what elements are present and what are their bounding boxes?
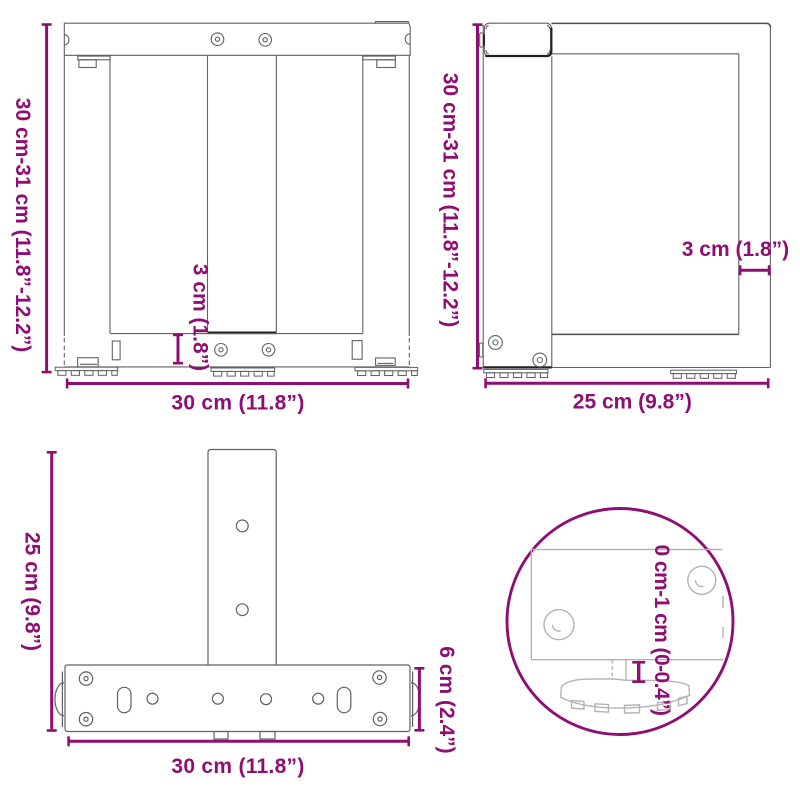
svg-text:3 cm (1.8”): 3 cm (1.8”) [188,264,211,371]
svg-text:30 cm (11.8”): 30 cm (11.8”) [171,392,304,415]
svg-text:30 cm-31 cm (11.8”-12.2”): 30 cm-31 cm (11.8”-12.2”) [439,73,462,327]
svg-text:3 cm (1.8”): 3 cm (1.8”) [682,238,789,261]
svg-text:30 cm (11.8”): 30 cm (11.8”) [171,755,304,778]
svg-text:25 cm (9.8”): 25 cm (9.8”) [573,391,692,414]
svg-text:0 cm-1 cm (0-0.4”): 0 cm-1 cm (0-0.4”) [650,544,673,715]
svg-text:30 cm-31 cm (11.8”-12.2”): 30 cm-31 cm (11.8”-12.2”) [11,98,34,352]
svg-text:25 cm (9.8”): 25 cm (9.8”) [21,532,44,651]
svg-text:6 cm (2.4”): 6 cm (2.4”) [435,646,458,753]
